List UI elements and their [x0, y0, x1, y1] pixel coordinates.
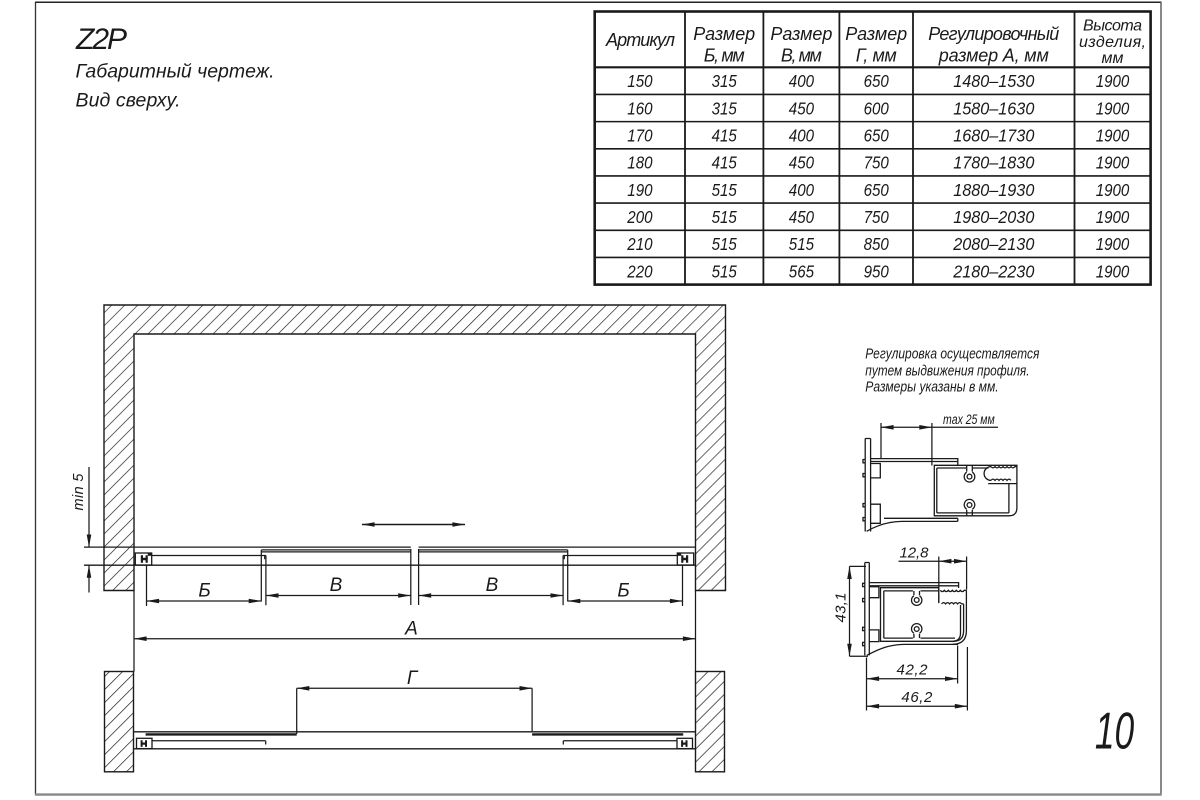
svg-text:Z2P: Z2P	[75, 23, 127, 56]
svg-text:Б: Б	[198, 581, 210, 602]
svg-text:650: 650	[864, 180, 890, 201]
svg-text:В: В	[330, 575, 343, 596]
svg-text:46,2: 46,2	[901, 689, 933, 706]
svg-text:170: 170	[627, 125, 653, 146]
svg-text:400: 400	[789, 71, 815, 92]
svg-text:1480–1530: 1480–1530	[953, 71, 1034, 91]
svg-text:1900: 1900	[1096, 71, 1130, 92]
svg-text:950: 950	[864, 261, 890, 282]
svg-text:В: В	[486, 575, 499, 596]
svg-text:А: А	[404, 619, 418, 640]
svg-text:1900: 1900	[1096, 207, 1130, 228]
svg-text:2080–2130: 2080–2130	[952, 234, 1034, 254]
svg-text:750: 750	[864, 207, 890, 228]
svg-text:В, мм: В, мм	[781, 46, 822, 66]
svg-text:220: 220	[626, 261, 653, 282]
svg-text:210: 210	[626, 234, 653, 255]
svg-text:1980–2030: 1980–2030	[953, 207, 1034, 227]
svg-text:850: 850	[864, 234, 890, 255]
svg-text:450: 450	[789, 207, 815, 228]
svg-text:400: 400	[789, 180, 815, 201]
svg-text:415: 415	[712, 152, 738, 173]
svg-text:путем выдвижения профиля.: путем выдвижения профиля.	[865, 362, 1029, 379]
svg-text:изделия,: изделия,	[1079, 34, 1146, 51]
svg-text:515: 515	[712, 180, 738, 201]
svg-text:1900: 1900	[1096, 125, 1130, 146]
svg-text:600: 600	[864, 98, 890, 119]
svg-text:Размер: Размер	[770, 24, 832, 44]
svg-text:450: 450	[789, 98, 815, 119]
svg-text:1900: 1900	[1096, 180, 1130, 201]
svg-text:1900: 1900	[1096, 261, 1130, 282]
svg-text:315: 315	[712, 98, 738, 119]
svg-text:Б: Б	[617, 581, 629, 602]
svg-text:315: 315	[712, 71, 738, 92]
svg-text:1880–1930: 1880–1930	[953, 180, 1034, 200]
svg-text:200: 200	[626, 207, 653, 228]
svg-text:Габаритный чертеж.: Габаритный чертеж.	[76, 61, 275, 83]
svg-text:1900: 1900	[1096, 234, 1130, 255]
svg-text:Артикул: Артикул	[605, 30, 675, 50]
svg-text:565: 565	[789, 261, 815, 282]
svg-text:515: 515	[712, 207, 738, 228]
svg-text:Регулировка осуществляется: Регулировка осуществляется	[865, 345, 1039, 362]
svg-text:мм: мм	[1102, 50, 1124, 67]
svg-text:190: 190	[627, 180, 653, 201]
svg-text:415: 415	[712, 125, 738, 146]
svg-text:2180–2230: 2180–2230	[952, 262, 1034, 282]
svg-text:160: 160	[627, 98, 653, 119]
svg-text:450: 450	[789, 152, 815, 173]
svg-text:650: 650	[864, 125, 890, 146]
svg-text:размер А, мм: размер А, мм	[938, 46, 1049, 66]
svg-text:max 25 мм: max 25 мм	[943, 412, 995, 428]
svg-text:1680–1730: 1680–1730	[953, 126, 1034, 146]
svg-text:10: 10	[1095, 703, 1135, 760]
svg-text:Размер: Размер	[693, 24, 755, 44]
svg-text:43,1: 43,1	[833, 593, 850, 623]
svg-text:150: 150	[627, 71, 653, 92]
svg-text:1580–1630: 1580–1630	[953, 99, 1034, 119]
svg-text:Г: Г	[407, 668, 419, 689]
svg-text:1900: 1900	[1096, 98, 1130, 119]
svg-text:Г, мм: Г, мм	[856, 46, 897, 66]
svg-text:min 5: min 5	[71, 473, 87, 511]
svg-text:Регулировочный: Регулировочный	[928, 24, 1059, 44]
svg-text:42,2: 42,2	[897, 662, 929, 679]
svg-text:Размер: Размер	[845, 24, 907, 44]
svg-text:515: 515	[712, 261, 738, 282]
svg-text:180: 180	[627, 152, 653, 173]
svg-text:12,8: 12,8	[900, 545, 930, 562]
svg-text:Высота: Высота	[1083, 18, 1142, 35]
svg-text:Размеры указаны в мм.: Размеры указаны в мм.	[865, 378, 998, 394]
svg-text:1900: 1900	[1096, 152, 1130, 173]
svg-text:1780–1830: 1780–1830	[953, 153, 1034, 173]
svg-text:750: 750	[864, 152, 890, 173]
svg-text:Б, мм: Б, мм	[704, 46, 745, 66]
svg-text:Вид сверху.: Вид сверху.	[76, 90, 181, 112]
svg-text:515: 515	[789, 234, 815, 255]
svg-text:400: 400	[789, 125, 815, 146]
svg-text:650: 650	[864, 71, 890, 92]
svg-text:515: 515	[712, 234, 738, 255]
